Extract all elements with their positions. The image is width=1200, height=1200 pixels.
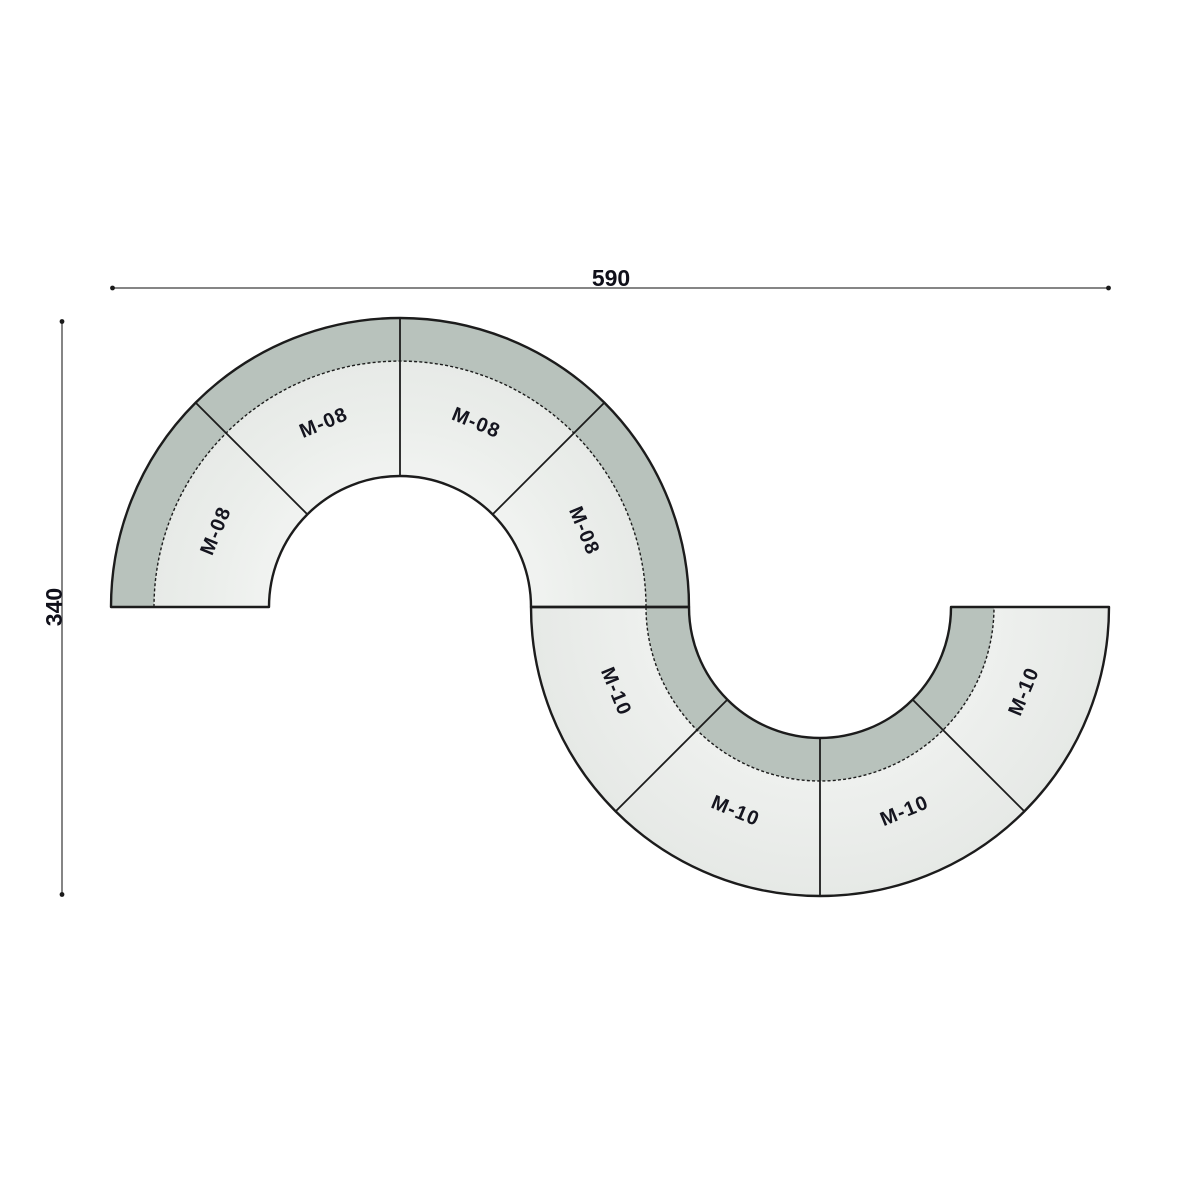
svg-text:340: 340 — [41, 588, 67, 626]
svg-text:590: 590 — [592, 265, 630, 291]
